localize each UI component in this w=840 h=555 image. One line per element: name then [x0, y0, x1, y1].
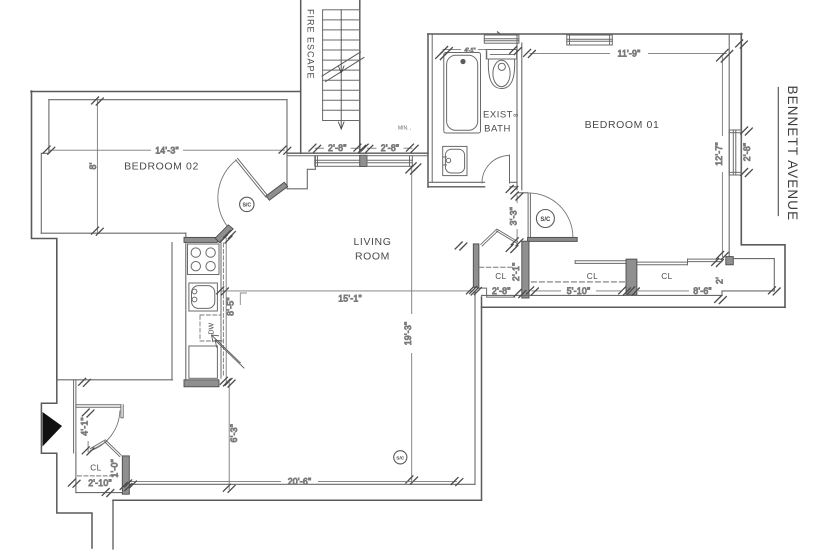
svg-text:FIRE ESCAPE: FIRE ESCAPE [306, 9, 316, 80]
svg-text:11'-9": 11'-9" [618, 49, 641, 59]
svg-text:2'-8": 2'-8" [381, 143, 400, 153]
svg-text:S/C: S/C [242, 203, 251, 209]
svg-text:S/C: S/C [540, 217, 551, 223]
svg-text:LIVING: LIVING [353, 236, 391, 248]
svg-text:ROOM: ROOM [355, 251, 390, 263]
svg-text:1'-0": 1'-0" [110, 459, 120, 478]
svg-text:EXIST: EXIST [483, 110, 513, 121]
svg-text:CL: CL [661, 272, 672, 281]
svg-text:14'-3": 14'-3" [155, 145, 179, 155]
svg-text:CL: CL [90, 464, 101, 473]
svg-text:3'-3": 3'-3" [509, 207, 519, 226]
svg-text:BEDROOM 01: BEDROOM 01 [585, 119, 660, 131]
svg-text:4'-1": 4'-1" [465, 48, 476, 54]
svg-text:MIN. ,: MIN. , [398, 126, 411, 132]
svg-text:DW: DW [209, 322, 216, 334]
svg-text:2'-1": 2'-1" [511, 263, 521, 282]
svg-text:BEDROOM 02: BEDROOM 02 [124, 161, 199, 173]
svg-text:BATH: BATH [484, 124, 511, 135]
svg-text:15'-1": 15'-1" [338, 294, 362, 304]
svg-text:6'-3": 6'-3" [229, 424, 239, 443]
svg-text:2'-8": 2'-8" [742, 143, 752, 162]
svg-text:2'-8": 2'-8" [328, 143, 347, 153]
svg-text:BENNETT AVENUE: BENNETT AVENUE [785, 86, 800, 222]
svg-text:2'-8": 2'-8" [492, 286, 511, 296]
svg-text:2'-10": 2'-10" [88, 478, 112, 488]
svg-text:CL: CL [587, 272, 598, 281]
svg-text:20'-6": 20'-6" [288, 477, 312, 487]
svg-text:5'-10": 5'-10" [567, 286, 591, 296]
svg-text:4'-1": 4'-1" [80, 417, 90, 436]
svg-text:8'-6": 8'-6" [693, 286, 712, 296]
svg-text:12'-7": 12'-7" [714, 142, 724, 166]
svg-text:S/C: S/C [396, 455, 405, 461]
svg-text:CL: CL [495, 272, 506, 281]
svg-text:2': 2' [715, 277, 725, 284]
svg-text:8': 8' [88, 162, 98, 169]
svg-text:8'-5": 8'-5" [226, 297, 236, 316]
svg-text:19'-3": 19'-3" [403, 322, 413, 346]
